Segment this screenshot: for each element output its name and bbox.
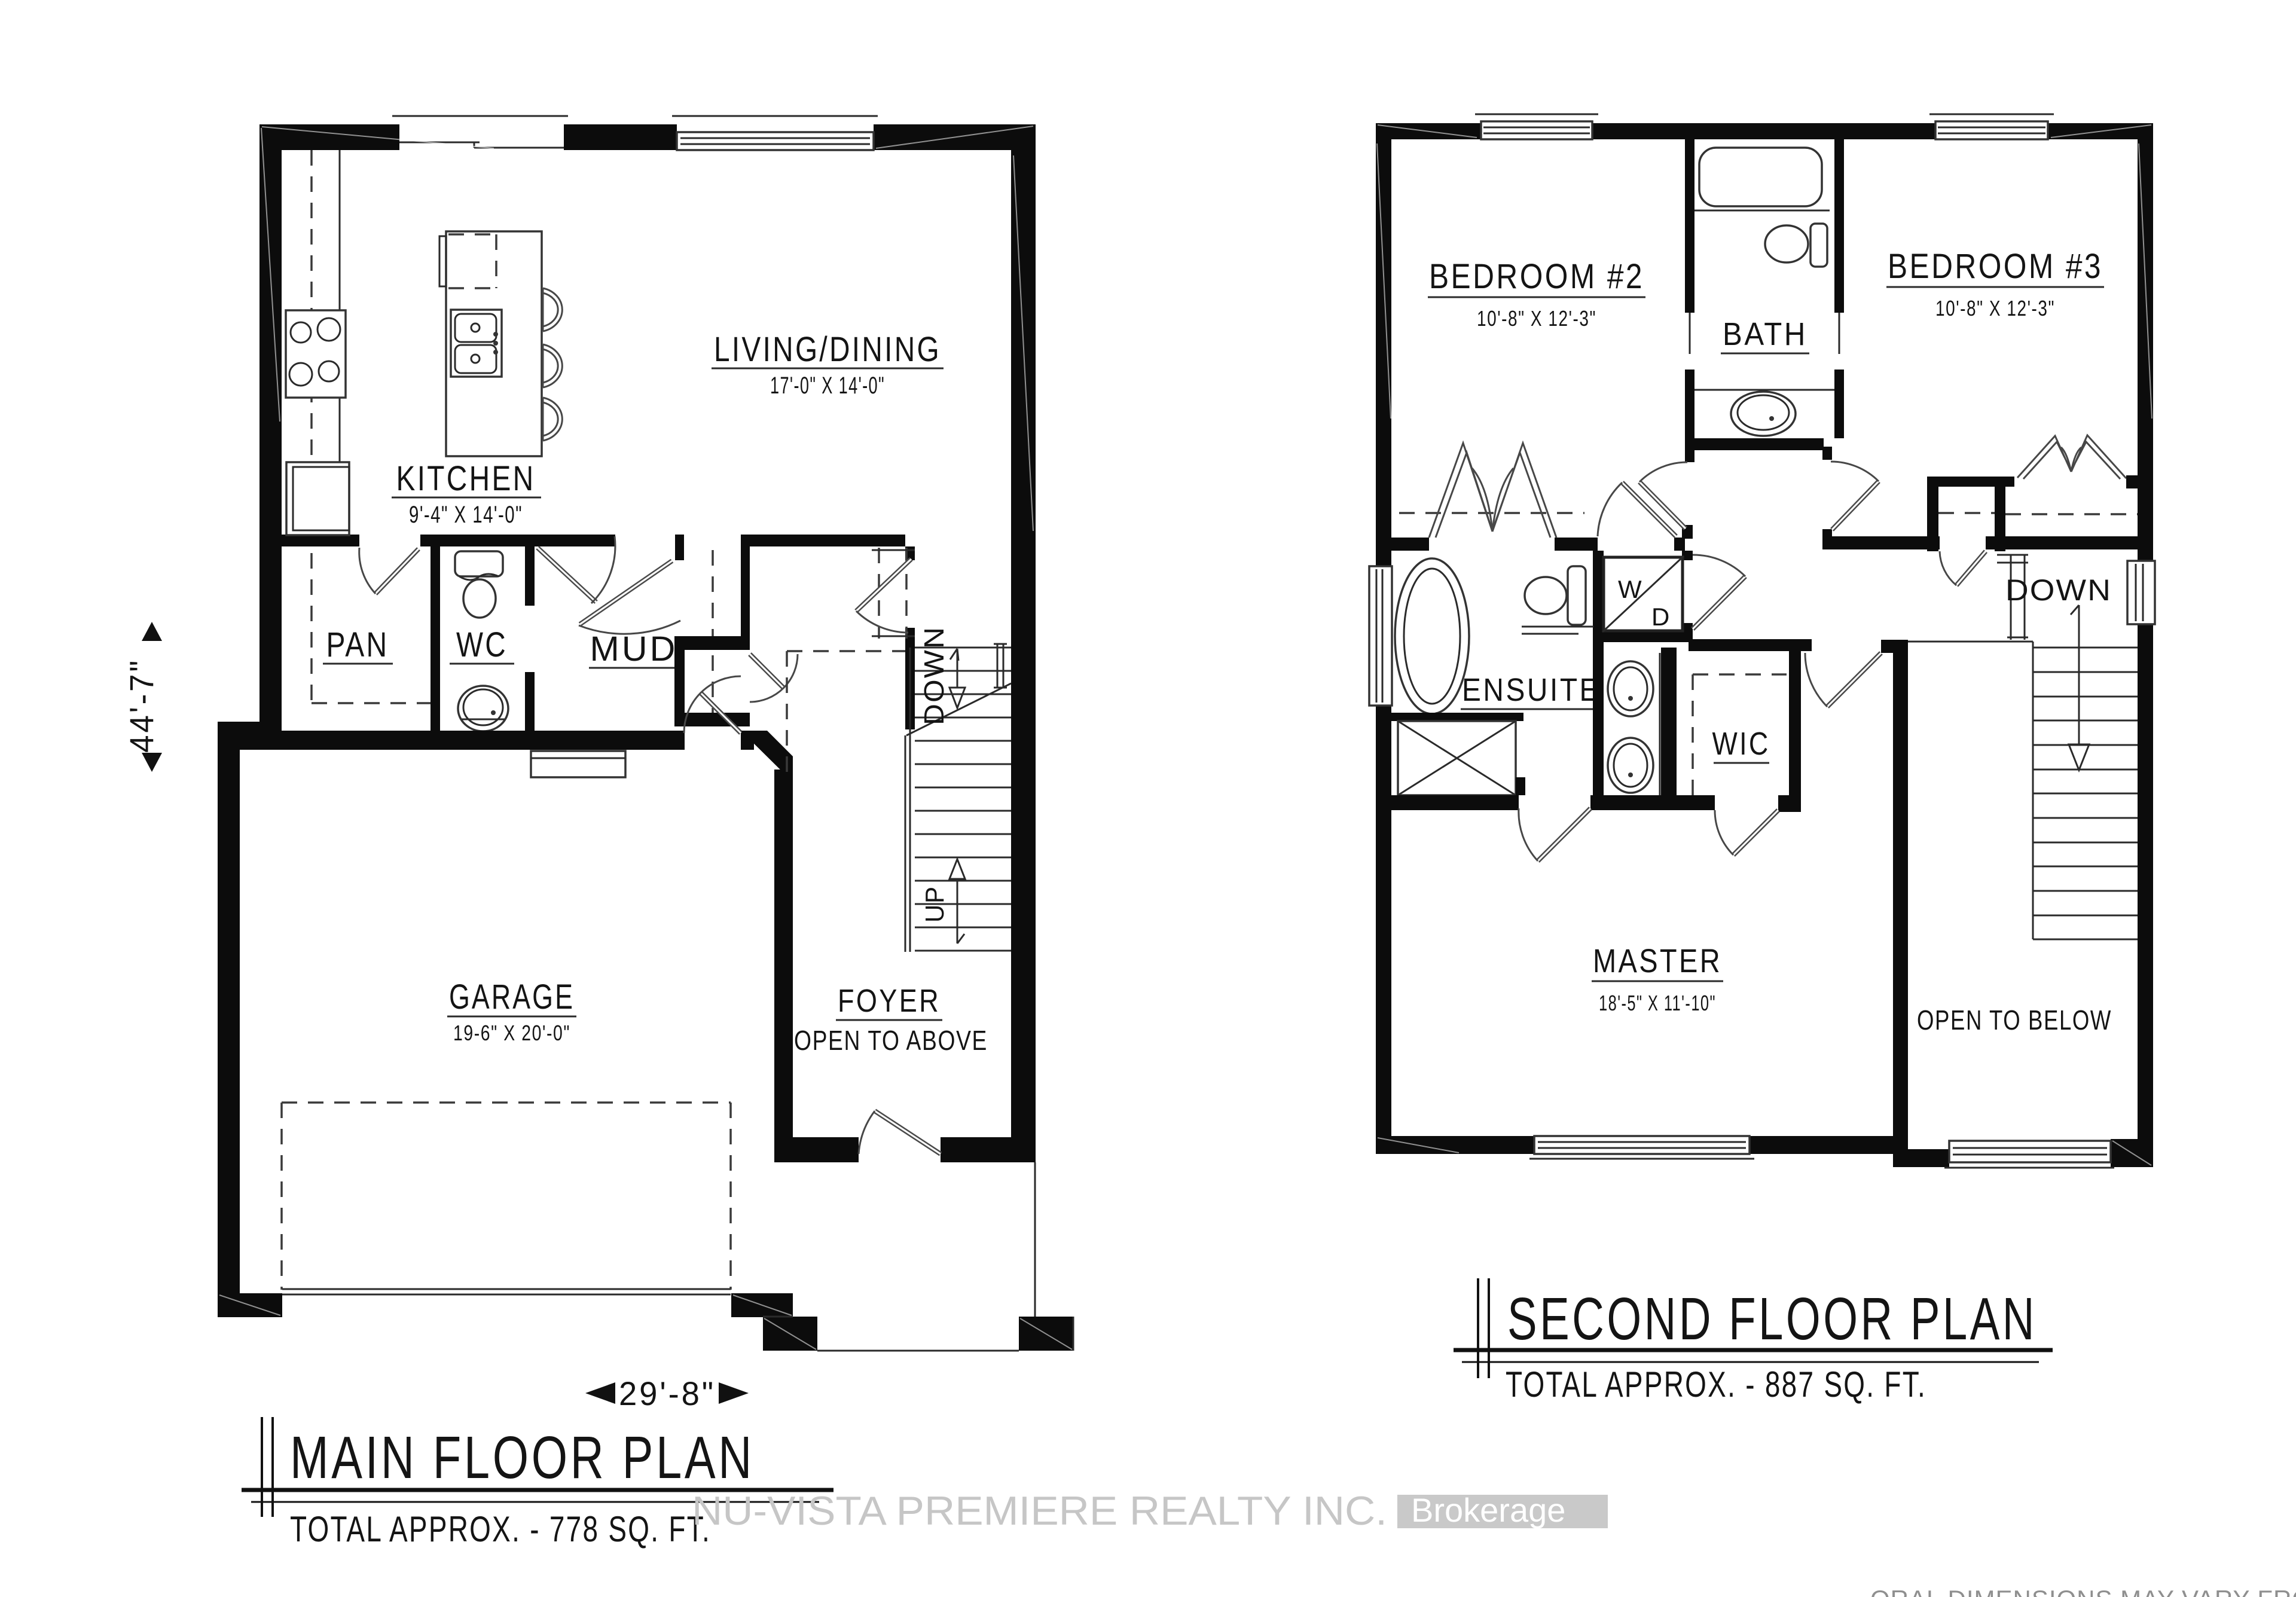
svg-text:BEDROOM #2: BEDROOM #2 [1429, 257, 1644, 296]
svg-text:17'-0" X 14'-0": 17'-0" X 14'-0" [770, 372, 885, 399]
svg-text:TOTAL APPROX. - 887 SQ. FT.: TOTAL APPROX. - 887 SQ. FT. [1506, 1364, 1926, 1404]
svg-text:MAIN FLOOR PLAN: MAIN FLOOR PLAN [290, 1424, 755, 1491]
svg-text:MUD: MUD [590, 630, 678, 668]
svg-text:LIVING/DINING: LIVING/DINING [714, 330, 941, 369]
svg-text:DOWN: DOWN [918, 626, 949, 725]
svg-text:OPEN TO BELOW: OPEN TO BELOW [1917, 1004, 2112, 1036]
svg-text:TOTAL APPROX. - 778 SQ. FT.: TOTAL APPROX. - 778 SQ. FT. [290, 1509, 711, 1549]
svg-text:BATH: BATH [1723, 316, 1808, 352]
svg-text:NU-VISTA PREMIERE REALTY INC.: NU-VISTA PREMIERE REALTY INC. [692, 1488, 1387, 1534]
svg-text:GARAGE: GARAGE [449, 978, 575, 1016]
svg-text:DOWN: DOWN [2005, 573, 2112, 607]
svg-text:9'-4" X 14'-0": 9'-4" X 14'-0" [409, 502, 523, 528]
svg-text:44'-7": 44'-7" [123, 658, 160, 753]
svg-text:10'-8" X 12'-3": 10'-8" X 12'-3" [1477, 306, 1596, 331]
svg-text:PAN: PAN [326, 625, 389, 664]
svg-text:ENSUITE: ENSUITE [1462, 672, 1601, 708]
svg-text:Brokerage: Brokerage [1411, 1491, 1565, 1529]
svg-text:SECOND FLOOR PLAN: SECOND FLOOR PLAN [1507, 1285, 2037, 1352]
svg-text:W: W [1618, 575, 1643, 603]
svg-text:WIC: WIC [1712, 726, 1770, 762]
svg-text:29'-8": 29'-8" [619, 1375, 716, 1412]
svg-text:19-6" X 20'-0": 19-6" X 20'-0" [453, 1021, 570, 1045]
svg-text:10'-8" X 12'-3": 10'-8" X 12'-3" [1935, 296, 2055, 320]
svg-text:BEDROOM #3: BEDROOM #3 [1888, 247, 2103, 286]
svg-text:WC: WC [456, 625, 508, 664]
svg-text:ORAL DIMENSIONS MAY VARY FROM: ORAL DIMENSIONS MAY VARY FROM THOSE SHOW… [1870, 1585, 2296, 1597]
svg-text:MASTER: MASTER [1593, 942, 1722, 979]
svg-text:KITCHEN: KITCHEN [396, 459, 536, 498]
svg-text:18'-5" X 11'-10": 18'-5" X 11'-10" [1599, 991, 1716, 1015]
svg-text:D: D [1651, 603, 1671, 631]
svg-text:FOYER: FOYER [838, 983, 941, 1019]
svg-text:OPEN TO ABOVE: OPEN TO ABOVE [794, 1025, 988, 1056]
svg-text:UP: UP [920, 885, 949, 923]
